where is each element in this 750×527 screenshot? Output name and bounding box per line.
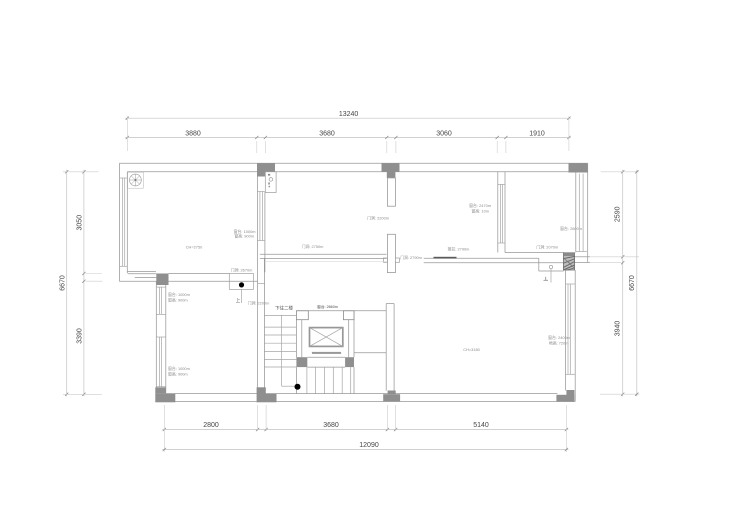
svg-text:窗高: 900m: 窗高: 900m (168, 371, 188, 376)
svg-text:窗高: 10m: 窗高: 10m (471, 209, 489, 214)
svg-text:窗台: 1000m: 窗台: 1000m (168, 292, 190, 297)
svg-text:2800: 2800 (203, 422, 219, 429)
svg-text:1910: 1910 (529, 130, 545, 137)
svg-text:CH=2750: CH=2750 (186, 245, 203, 250)
svg-text:3680: 3680 (319, 130, 335, 137)
svg-text:下往二楼: 下往二楼 (275, 304, 293, 311)
svg-text:窗台: 2660m: 窗台: 2660m (317, 304, 338, 309)
svg-text:5140: 5140 (473, 422, 489, 429)
svg-text:12090: 12090 (359, 442, 379, 449)
svg-text:窗台: 2600m: 窗台: 2600m (560, 226, 582, 231)
svg-text:6670: 6670 (59, 275, 66, 291)
svg-text:门洞: 2200m: 门洞: 2200m (367, 216, 389, 221)
svg-text:窗高: 900m: 窗高: 900m (168, 297, 188, 302)
svg-text:CH=3180: CH=3180 (463, 347, 480, 352)
svg-text:门洞: 2070m: 门洞: 2070m (536, 245, 558, 250)
svg-text:3880: 3880 (185, 130, 201, 137)
svg-text:窗台: 1000m: 窗台: 1000m (168, 366, 190, 371)
svg-text:上: 上 (236, 297, 241, 303)
svg-text:门洞: 2750m: 门洞: 2750m (302, 244, 324, 249)
svg-text:窗台: 2400m: 窗台: 2400m (548, 335, 570, 340)
svg-text:窗高: 900m: 窗高: 900m (234, 234, 254, 239)
svg-text:3050: 3050 (76, 215, 83, 231)
svg-text:3680: 3680 (323, 422, 339, 429)
svg-text:6670: 6670 (629, 275, 636, 291)
svg-text:窗台: 2470m: 窗台: 2470m (469, 203, 491, 208)
svg-text:3940: 3940 (615, 321, 622, 337)
svg-text:2590: 2590 (615, 206, 622, 222)
svg-text:推拉: 2790m: 推拉: 2790m (448, 247, 470, 252)
svg-text:门洞: 2200m: 门洞: 2200m (248, 300, 270, 305)
svg-text:3390: 3390 (76, 328, 83, 344)
svg-text:门洞: 2670m: 门洞: 2670m (231, 268, 253, 273)
svg-text:门洞: 2790m: 门洞: 2790m (400, 255, 422, 260)
svg-text:13240: 13240 (339, 111, 359, 118)
svg-text:3060: 3060 (436, 130, 452, 137)
